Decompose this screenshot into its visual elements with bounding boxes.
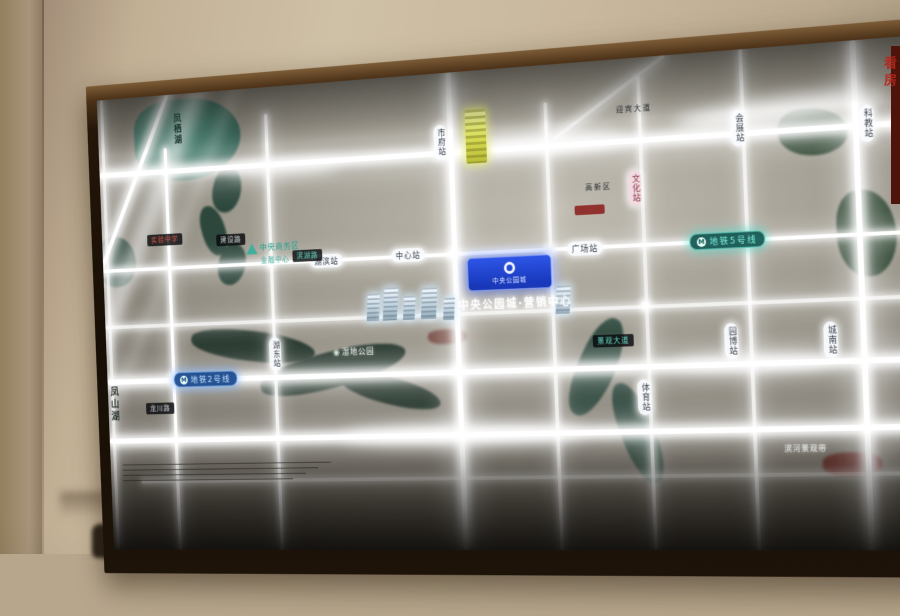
station-pill: 科教站 bbox=[859, 104, 875, 142]
screen-bottom-shade bbox=[110, 431, 900, 551]
cbd-triangle-icon bbox=[246, 243, 257, 254]
cbd-sublabel: 金融中心 bbox=[261, 254, 290, 265]
building-icon bbox=[421, 287, 437, 319]
station-pill: 湖东站 bbox=[269, 337, 282, 371]
building-icon bbox=[403, 296, 416, 320]
road-name-pill: 景观大道 bbox=[593, 334, 634, 348]
project-badge-text: 中央公园城 bbox=[492, 275, 527, 286]
glare-bloom bbox=[227, 157, 339, 179]
station-pill: 中心站 bbox=[391, 247, 425, 262]
map-screen: 凤栖湖 凤山湖 市府站 文化站 会展站 科教站 湖东站 体育站 园博站 城南站 … bbox=[97, 34, 900, 551]
west-lake-label: 凤山湖 bbox=[108, 386, 121, 423]
building-icon bbox=[443, 298, 455, 321]
map-panel: 凤栖湖 凤山湖 市府站 文化站 会展站 科教站 湖东站 体育站 园博站 城南站 … bbox=[0, 16, 900, 616]
metro-icon: M bbox=[697, 237, 707, 247]
project-ring-logo-icon bbox=[503, 261, 515, 274]
park-dot-icon: ◉ bbox=[333, 349, 341, 358]
metro-icon: M bbox=[180, 375, 188, 384]
road-name-pill: 建设路 bbox=[216, 233, 245, 246]
station-pill: 园博站 bbox=[724, 323, 739, 360]
station-pill: 市府站 bbox=[433, 124, 447, 160]
station-pill: 文化站 bbox=[627, 170, 642, 207]
station-pill: 会展站 bbox=[730, 109, 745, 147]
station-pill: 广场站 bbox=[567, 240, 603, 256]
lake-label: 凤栖湖 bbox=[170, 113, 183, 145]
red-label-tag bbox=[574, 204, 604, 215]
riverside-label: 滨河景观带 bbox=[784, 443, 827, 454]
metro-line2-pill: M 地铁2号线 bbox=[174, 371, 238, 388]
project-badge: 中央公园城 bbox=[467, 254, 552, 291]
building-icon bbox=[367, 293, 380, 321]
watermark-text: 看房 bbox=[879, 56, 898, 90]
landmark-shape bbox=[428, 329, 467, 345]
station-pill: 城南站 bbox=[823, 321, 839, 359]
station-pill: 体育站 bbox=[637, 379, 652, 415]
district-label: 高新区 bbox=[585, 181, 612, 193]
wetland-label: ◉湿地公园 bbox=[333, 345, 375, 358]
road-name-pill: 龙川路 bbox=[146, 402, 175, 414]
road-name-pill: 实验中学 bbox=[147, 233, 182, 246]
building-icon bbox=[383, 287, 398, 320]
glare-bloom bbox=[672, 351, 832, 373]
